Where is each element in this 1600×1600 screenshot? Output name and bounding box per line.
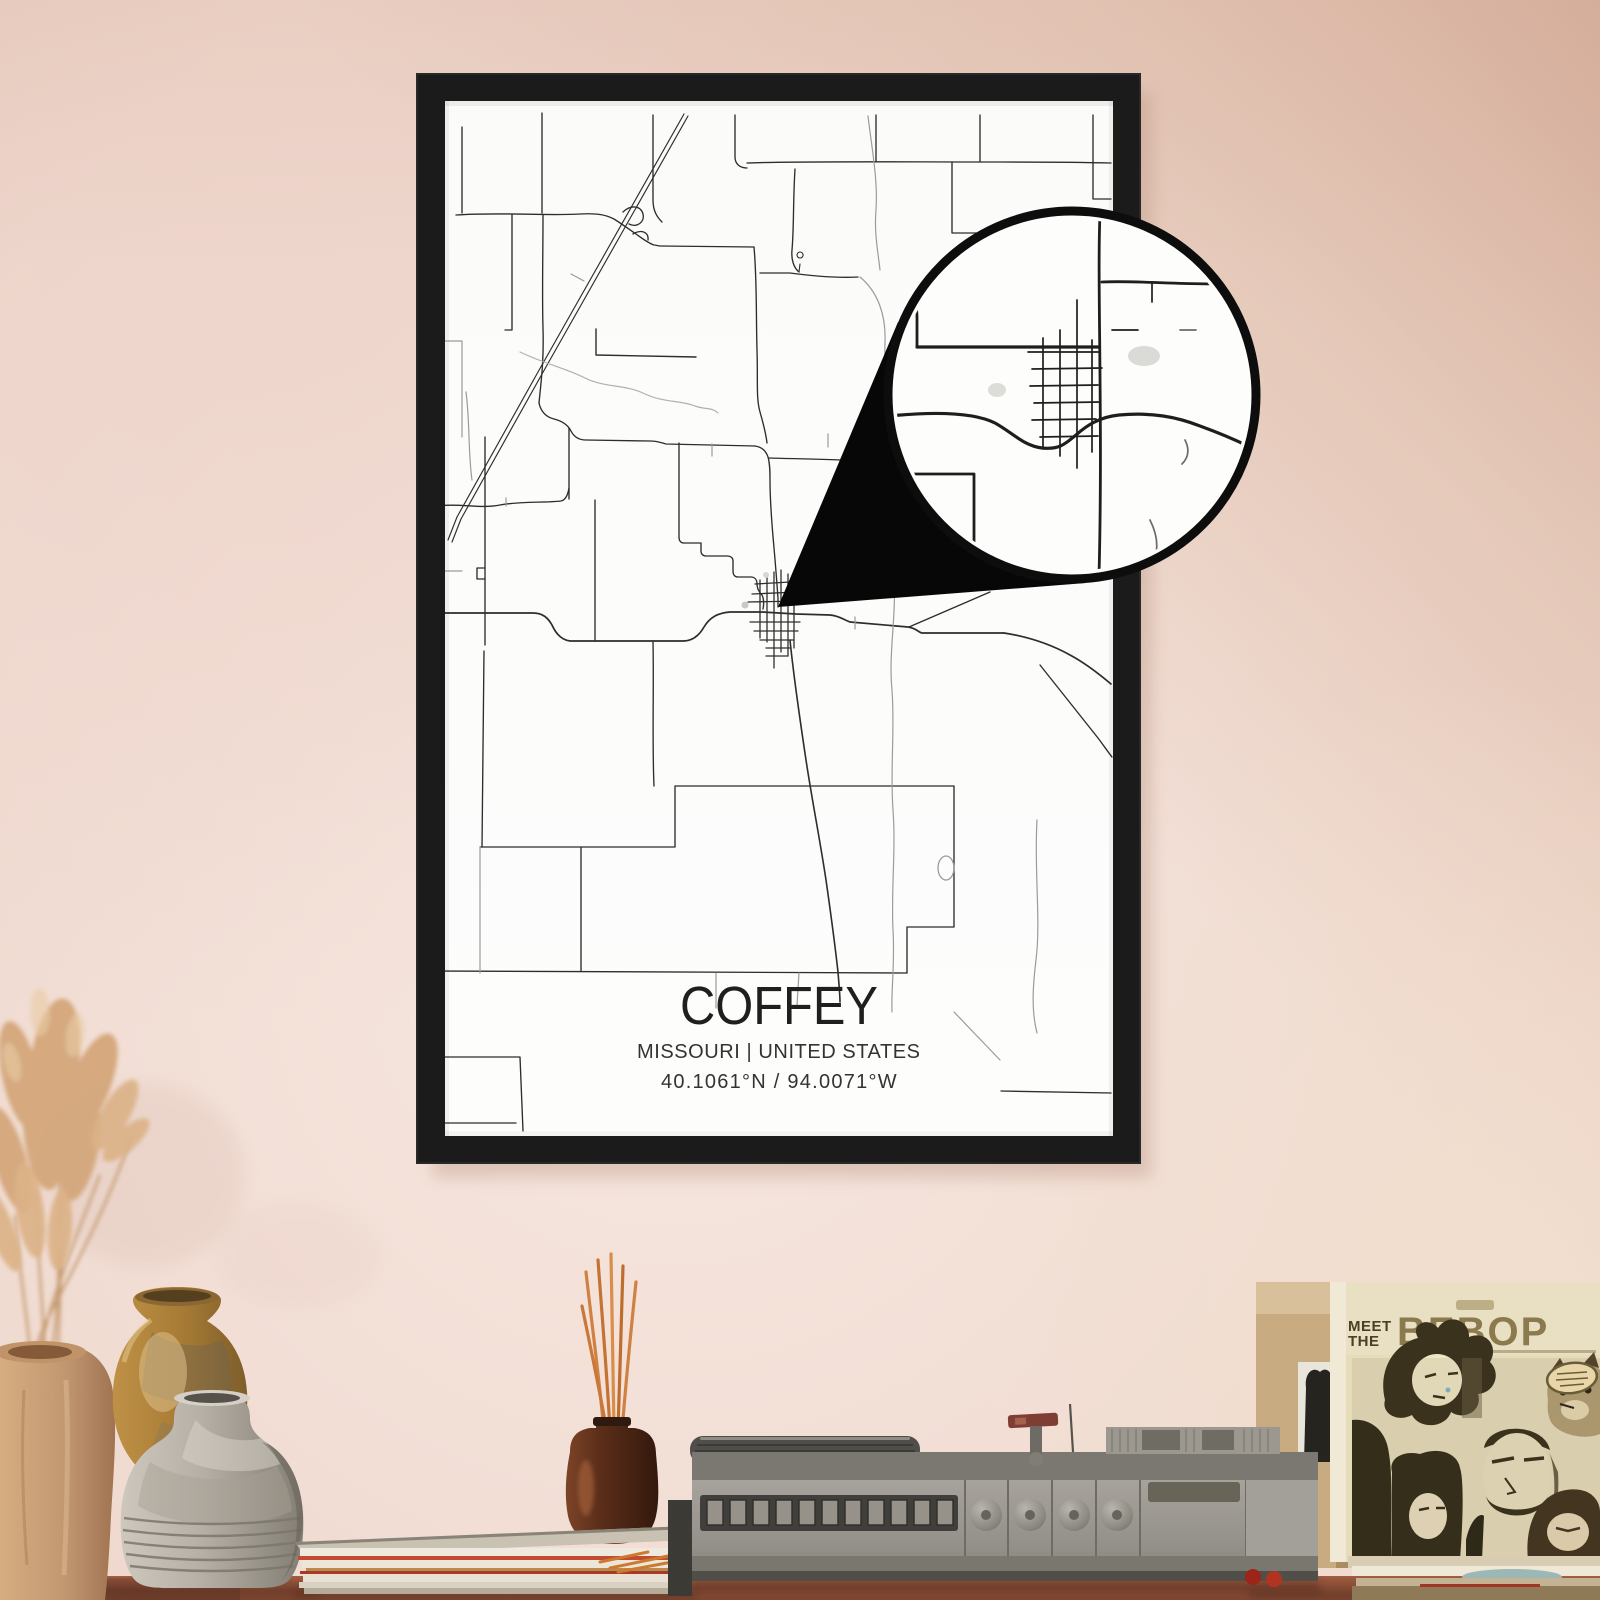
svg-text:THE: THE	[1348, 1333, 1380, 1350]
svg-text:40.1061°N / 94.0071°W: 40.1061°N / 94.0071°W	[661, 1071, 897, 1093]
svg-text:MISSOURI | UNITED STATES: MISSOURI | UNITED STATES	[637, 1041, 921, 1063]
svg-text:COFFEY: COFFEY	[680, 976, 878, 1036]
